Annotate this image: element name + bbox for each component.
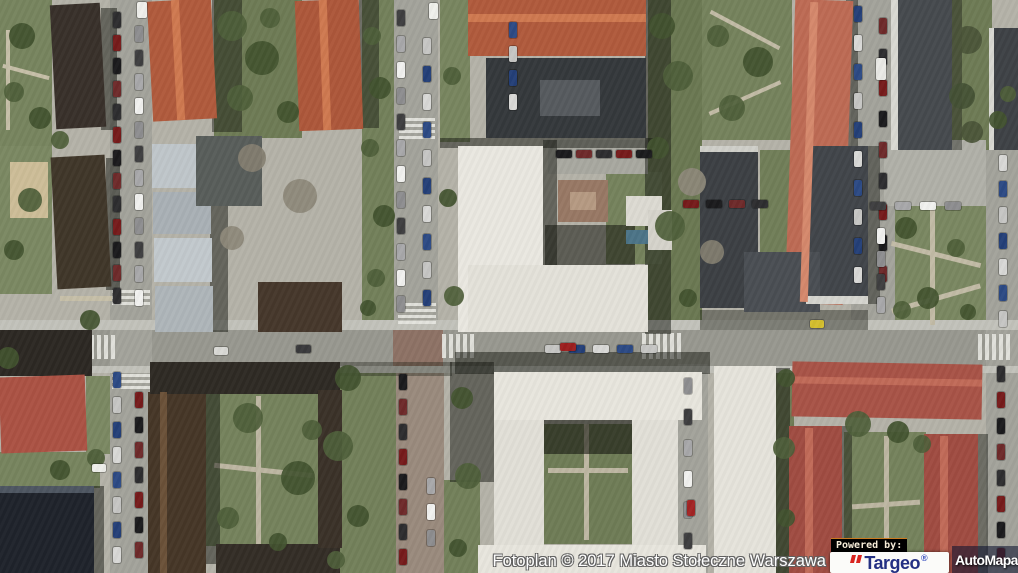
tree (227, 85, 253, 111)
tree (347, 505, 369, 527)
car (113, 497, 121, 513)
car (397, 166, 405, 182)
tree (281, 461, 315, 495)
tree (913, 435, 931, 453)
building (714, 366, 776, 573)
map-attribution: Fotoplan © 2017 Miasto Stołeczne Warszaw… (493, 552, 826, 571)
tree (217, 507, 239, 529)
car (752, 200, 768, 208)
car (999, 285, 1007, 301)
car (113, 12, 121, 28)
car (706, 200, 722, 208)
shadow (952, 0, 962, 150)
car (113, 397, 121, 413)
tree (220, 226, 244, 250)
car (137, 2, 147, 18)
tree (277, 101, 299, 123)
car (214, 347, 228, 355)
car (423, 38, 431, 54)
car (113, 422, 121, 438)
crosswalk-stripe (442, 334, 446, 358)
car (999, 181, 1007, 197)
car (854, 6, 862, 22)
car (397, 218, 405, 234)
shadow (544, 420, 632, 454)
tree (947, 239, 965, 257)
building (51, 155, 112, 290)
car (135, 194, 143, 210)
car (113, 522, 121, 538)
tree (777, 509, 795, 527)
car (397, 270, 405, 286)
green-area (444, 480, 480, 573)
car (135, 122, 143, 138)
automapa-logo[interactable]: AutoMapa ® (952, 546, 1018, 573)
car (560, 343, 576, 351)
tree (443, 67, 461, 85)
car (135, 242, 143, 258)
tree (679, 289, 697, 307)
satellite-map-viewport[interactable]: Fotoplan © 2017 Miasto Stołeczne Warszaw… (0, 0, 1018, 573)
car (997, 470, 1005, 486)
car (135, 392, 143, 408)
tree (302, 420, 322, 440)
car (423, 150, 431, 166)
car (879, 173, 887, 189)
road (393, 330, 443, 366)
shadow (645, 0, 671, 334)
car (997, 366, 1005, 382)
car (810, 320, 824, 328)
path (60, 296, 112, 301)
crosswalk-stripe (985, 334, 989, 360)
car (684, 533, 692, 549)
crosswalk-stripe (449, 334, 453, 358)
car (135, 542, 143, 558)
building (0, 486, 94, 493)
tree (283, 179, 317, 213)
crosswalk-stripe (104, 335, 108, 359)
car (854, 267, 862, 283)
car (877, 274, 885, 290)
building (50, 3, 106, 129)
car (399, 474, 407, 490)
tree (4, 240, 24, 260)
car (113, 242, 121, 258)
car (397, 244, 405, 260)
building (258, 282, 342, 332)
building (468, 265, 648, 332)
tree (238, 144, 266, 172)
tree (895, 217, 917, 239)
targeo-logo[interactable]: Targeo ® (830, 552, 949, 573)
tree (327, 551, 345, 569)
car (399, 399, 407, 415)
car (427, 478, 435, 494)
car (113, 219, 121, 235)
car (895, 202, 911, 210)
car (113, 58, 121, 74)
targeo-logo-text: Targeo (864, 554, 920, 572)
car (423, 206, 431, 222)
tree (773, 437, 795, 459)
car (113, 288, 121, 304)
car (399, 549, 407, 565)
car (879, 111, 887, 127)
car (113, 104, 121, 120)
car (854, 64, 862, 80)
building (0, 375, 87, 454)
car (636, 150, 652, 158)
building (154, 238, 212, 282)
car (399, 449, 407, 465)
car (509, 70, 517, 86)
building (898, 0, 952, 150)
shadow (700, 310, 868, 330)
car (113, 265, 121, 281)
tree (700, 240, 724, 264)
tree (269, 533, 287, 551)
tree (18, 188, 42, 212)
car (854, 122, 862, 138)
car (877, 251, 885, 267)
crosswalk-stripe (111, 335, 115, 359)
car (879, 80, 887, 96)
shadow (545, 225, 635, 270)
building (155, 286, 213, 332)
building (806, 296, 868, 304)
tree (655, 211, 685, 241)
car (877, 228, 885, 244)
building (792, 361, 983, 419)
car (135, 170, 143, 186)
targeo-accent-icon (851, 555, 861, 563)
car (135, 442, 143, 458)
tree (678, 168, 706, 196)
car (616, 150, 632, 158)
car (999, 207, 1007, 223)
car (509, 94, 517, 110)
building (468, 14, 646, 22)
car (113, 35, 121, 51)
car (509, 46, 517, 62)
path (570, 192, 596, 210)
car (397, 88, 405, 104)
tree (245, 41, 279, 75)
tree (369, 77, 391, 99)
tree (455, 463, 481, 489)
crosswalk-stripe (992, 334, 996, 360)
shadow (776, 368, 790, 573)
car (135, 26, 143, 42)
car (399, 424, 407, 440)
car (684, 440, 692, 456)
tree (360, 300, 376, 316)
car (423, 290, 431, 306)
car (997, 522, 1005, 538)
car (556, 150, 572, 158)
car (999, 233, 1007, 249)
car (92, 464, 106, 472)
car (854, 151, 862, 167)
crosswalk-stripe (398, 315, 436, 318)
building (700, 146, 758, 152)
road (396, 366, 444, 573)
crosswalk-stripe (1006, 334, 1010, 360)
crosswalk-stripe (999, 334, 1003, 360)
car (135, 467, 143, 483)
building (148, 392, 206, 573)
car (687, 500, 695, 516)
car (399, 499, 407, 515)
car (113, 472, 121, 488)
car (596, 150, 612, 158)
car (423, 178, 431, 194)
car (879, 18, 887, 34)
car (397, 36, 405, 52)
car (920, 202, 936, 210)
tree (707, 25, 729, 47)
tree (217, 11, 247, 41)
tree (960, 304, 976, 320)
crosswalk-stripe (97, 335, 101, 359)
car (854, 35, 862, 51)
car (397, 10, 405, 26)
car (113, 150, 121, 166)
car (999, 311, 1007, 327)
car (135, 517, 143, 533)
building (494, 420, 544, 545)
car (113, 81, 121, 97)
car (999, 155, 1007, 171)
tree (444, 286, 464, 306)
car (729, 200, 745, 208)
shadow (204, 392, 220, 564)
car (945, 202, 961, 210)
tree (449, 539, 467, 557)
car (397, 114, 405, 130)
tree (9, 23, 35, 49)
tree (367, 269, 385, 287)
car (397, 296, 405, 312)
tree (323, 431, 353, 461)
building (632, 420, 678, 545)
car (593, 345, 609, 353)
car (113, 547, 121, 563)
car (135, 266, 143, 282)
car (397, 140, 405, 156)
targeo-registered-mark: ® (921, 553, 928, 563)
car (296, 345, 311, 353)
car (427, 530, 435, 546)
car (617, 345, 633, 353)
tree (373, 205, 395, 227)
path (6, 30, 10, 130)
tree (50, 460, 70, 480)
car (113, 372, 121, 388)
car (423, 234, 431, 250)
tree (649, 13, 675, 39)
crosswalk-stripe (978, 334, 982, 360)
tree (989, 111, 1007, 129)
tree (845, 411, 871, 437)
tree (954, 26, 982, 54)
car (135, 146, 143, 162)
car (135, 492, 143, 508)
car (999, 259, 1007, 275)
tree (743, 47, 773, 77)
car (997, 418, 1005, 434)
car (113, 173, 121, 189)
car (509, 22, 517, 38)
car (997, 496, 1005, 512)
building (540, 80, 600, 116)
car (876, 58, 886, 80)
crosswalk-stripe (398, 321, 436, 324)
car (423, 94, 431, 110)
tree (51, 131, 69, 149)
tree (1000, 86, 1016, 102)
car (423, 122, 431, 138)
powered-by-text: Powered by: (836, 540, 902, 551)
automapa-logo-text: AutoMapa (955, 552, 1018, 568)
tree (917, 287, 939, 309)
car (879, 142, 887, 158)
car (997, 444, 1005, 460)
car (684, 378, 692, 394)
tree (451, 387, 473, 409)
car (135, 218, 143, 234)
car (576, 150, 592, 158)
tree (719, 95, 745, 121)
car (113, 196, 121, 212)
tree (961, 121, 983, 143)
building (0, 486, 94, 573)
car (397, 192, 405, 208)
car (854, 209, 862, 225)
building (160, 392, 167, 573)
tree (29, 107, 51, 129)
car (870, 202, 886, 210)
car (684, 409, 692, 425)
car (854, 238, 862, 254)
tree (233, 403, 263, 433)
car (135, 290, 143, 306)
car (683, 200, 699, 208)
car (423, 262, 431, 278)
tree (361, 139, 379, 157)
building (468, 0, 646, 56)
car (113, 447, 121, 463)
attribution-text: Fotoplan © 2017 Miasto Stołeczne Warszaw… (493, 552, 826, 570)
car (545, 345, 561, 353)
car (135, 74, 143, 90)
car (423, 66, 431, 82)
tree (260, 8, 280, 28)
car (877, 297, 885, 313)
car (684, 471, 692, 487)
tree (887, 421, 909, 443)
tree (949, 83, 975, 109)
tree (80, 310, 100, 330)
tree (335, 365, 361, 391)
car (135, 417, 143, 433)
tree (4, 82, 24, 102)
car (399, 374, 407, 390)
car (641, 345, 657, 353)
tree (363, 27, 381, 45)
building (318, 390, 342, 548)
car (135, 98, 143, 114)
tree (893, 301, 911, 319)
car (399, 524, 407, 540)
tree (663, 61, 693, 91)
car (135, 50, 143, 66)
shadow (455, 352, 710, 374)
building (150, 362, 340, 394)
building (494, 372, 702, 420)
car (429, 3, 438, 19)
car (397, 62, 405, 78)
car (854, 93, 862, 109)
car (854, 180, 862, 196)
car (427, 504, 435, 520)
tree (777, 369, 795, 387)
tree (439, 189, 457, 207)
map-canvas[interactable] (0, 0, 1018, 573)
car (113, 127, 121, 143)
car (997, 392, 1005, 408)
